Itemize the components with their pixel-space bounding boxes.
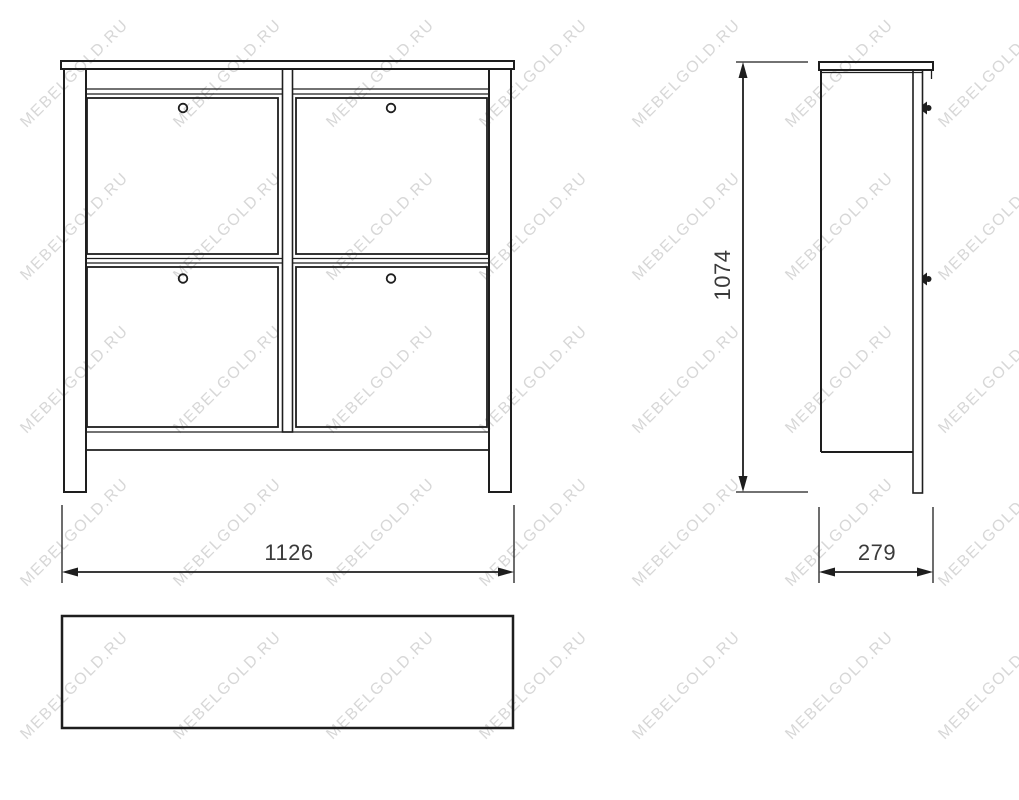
arrowhead-up-icon — [739, 62, 748, 78]
front-right-leg — [489, 69, 511, 492]
knob-side-profile — [923, 273, 932, 286]
top-view — [62, 616, 513, 728]
arrowhead-down-icon — [739, 476, 748, 492]
arrowhead-left-icon — [62, 568, 78, 577]
door-top-left — [87, 98, 278, 254]
door-bottom-left — [87, 267, 278, 427]
front-left-leg — [64, 69, 86, 492]
arrowhead-left-icon — [819, 568, 835, 577]
arrowhead-right-icon — [917, 568, 933, 577]
depth-dimension-value: 279 — [858, 540, 896, 565]
drawing-canvas: MEBELGOLD.RUMEBELGOLD.RUMEBELGOLD.RUMEBE… — [0, 0, 1019, 800]
door-knob — [387, 274, 396, 283]
side-top-panel — [819, 62, 933, 70]
top-view-panel — [62, 616, 513, 728]
front-view — [61, 61, 514, 492]
door-top-right — [296, 98, 487, 254]
side-front-leg — [913, 70, 923, 493]
dimension-depth: 279 — [819, 507, 933, 583]
technical-drawing: 1126 1074 — [0, 0, 1019, 800]
knob-cap — [926, 105, 932, 111]
width-dimension-value: 1126 — [264, 540, 313, 565]
door-knob — [179, 274, 188, 283]
knob-cap — [926, 276, 932, 282]
height-dimension-value: 1074 — [710, 250, 735, 301]
door-knob — [387, 104, 396, 113]
door-knob — [179, 104, 188, 113]
knob-side-profile — [923, 102, 932, 115]
center-divider — [283, 69, 293, 432]
dimension-height: 1074 — [710, 62, 808, 492]
front-top-panel — [61, 61, 514, 69]
arrowhead-right-icon — [498, 568, 514, 577]
dimension-width: 1126 — [62, 505, 514, 583]
side-view — [819, 62, 933, 493]
door-bottom-right — [296, 267, 487, 427]
